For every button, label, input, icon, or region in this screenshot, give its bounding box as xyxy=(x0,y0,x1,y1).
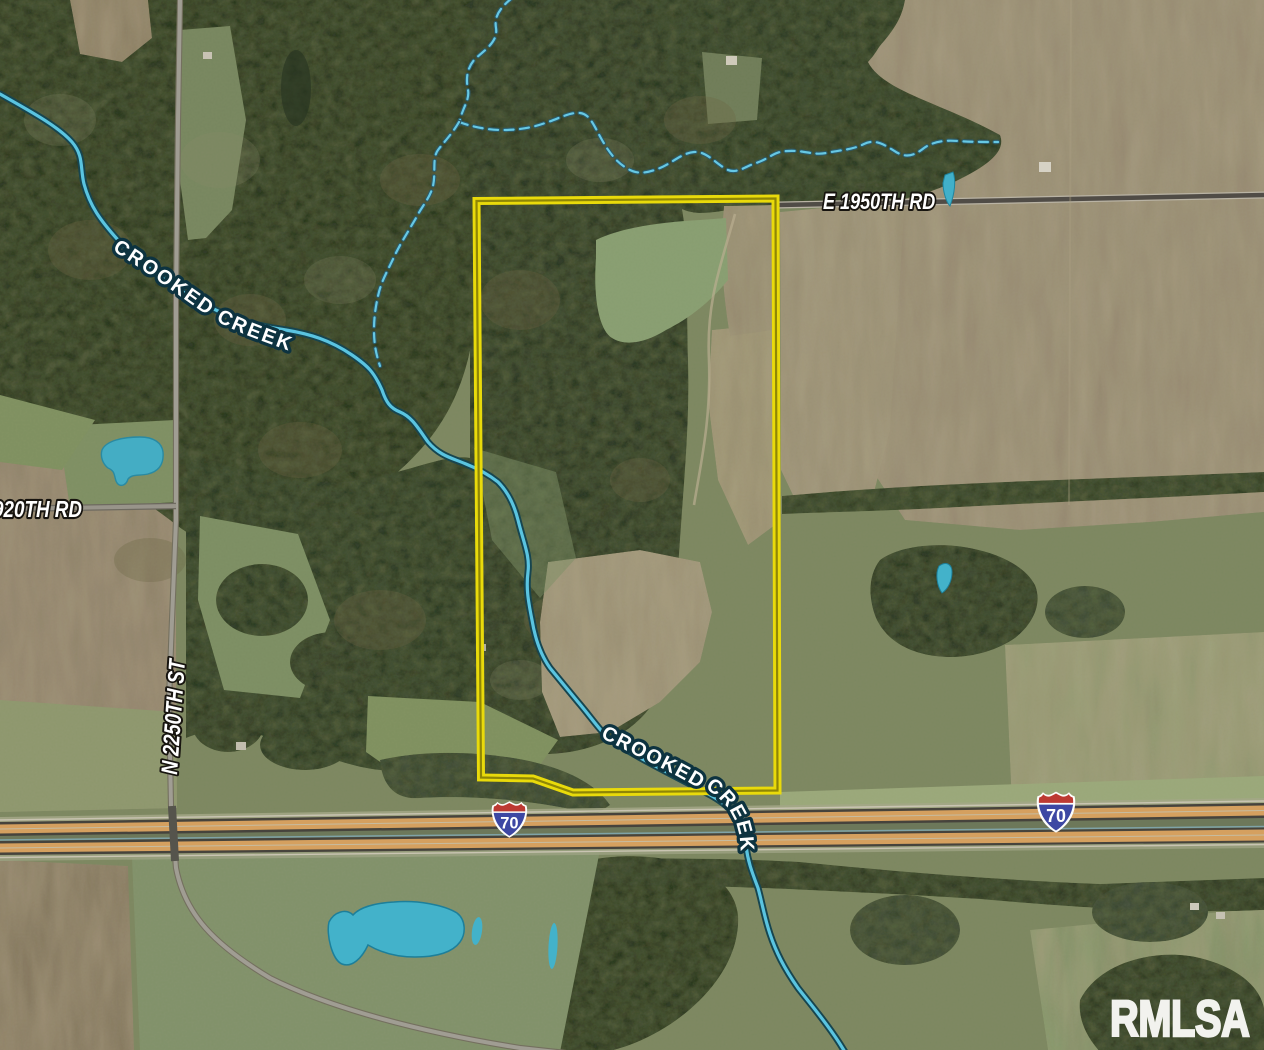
svg-text:70: 70 xyxy=(1046,806,1066,826)
svg-text:70: 70 xyxy=(500,815,518,833)
svg-text:E 1950TH RD: E 1950TH RD xyxy=(823,190,935,214)
svg-text:920TH RD: 920TH RD xyxy=(0,497,82,522)
svg-text:RMLSA: RMLSA xyxy=(1110,990,1249,1047)
